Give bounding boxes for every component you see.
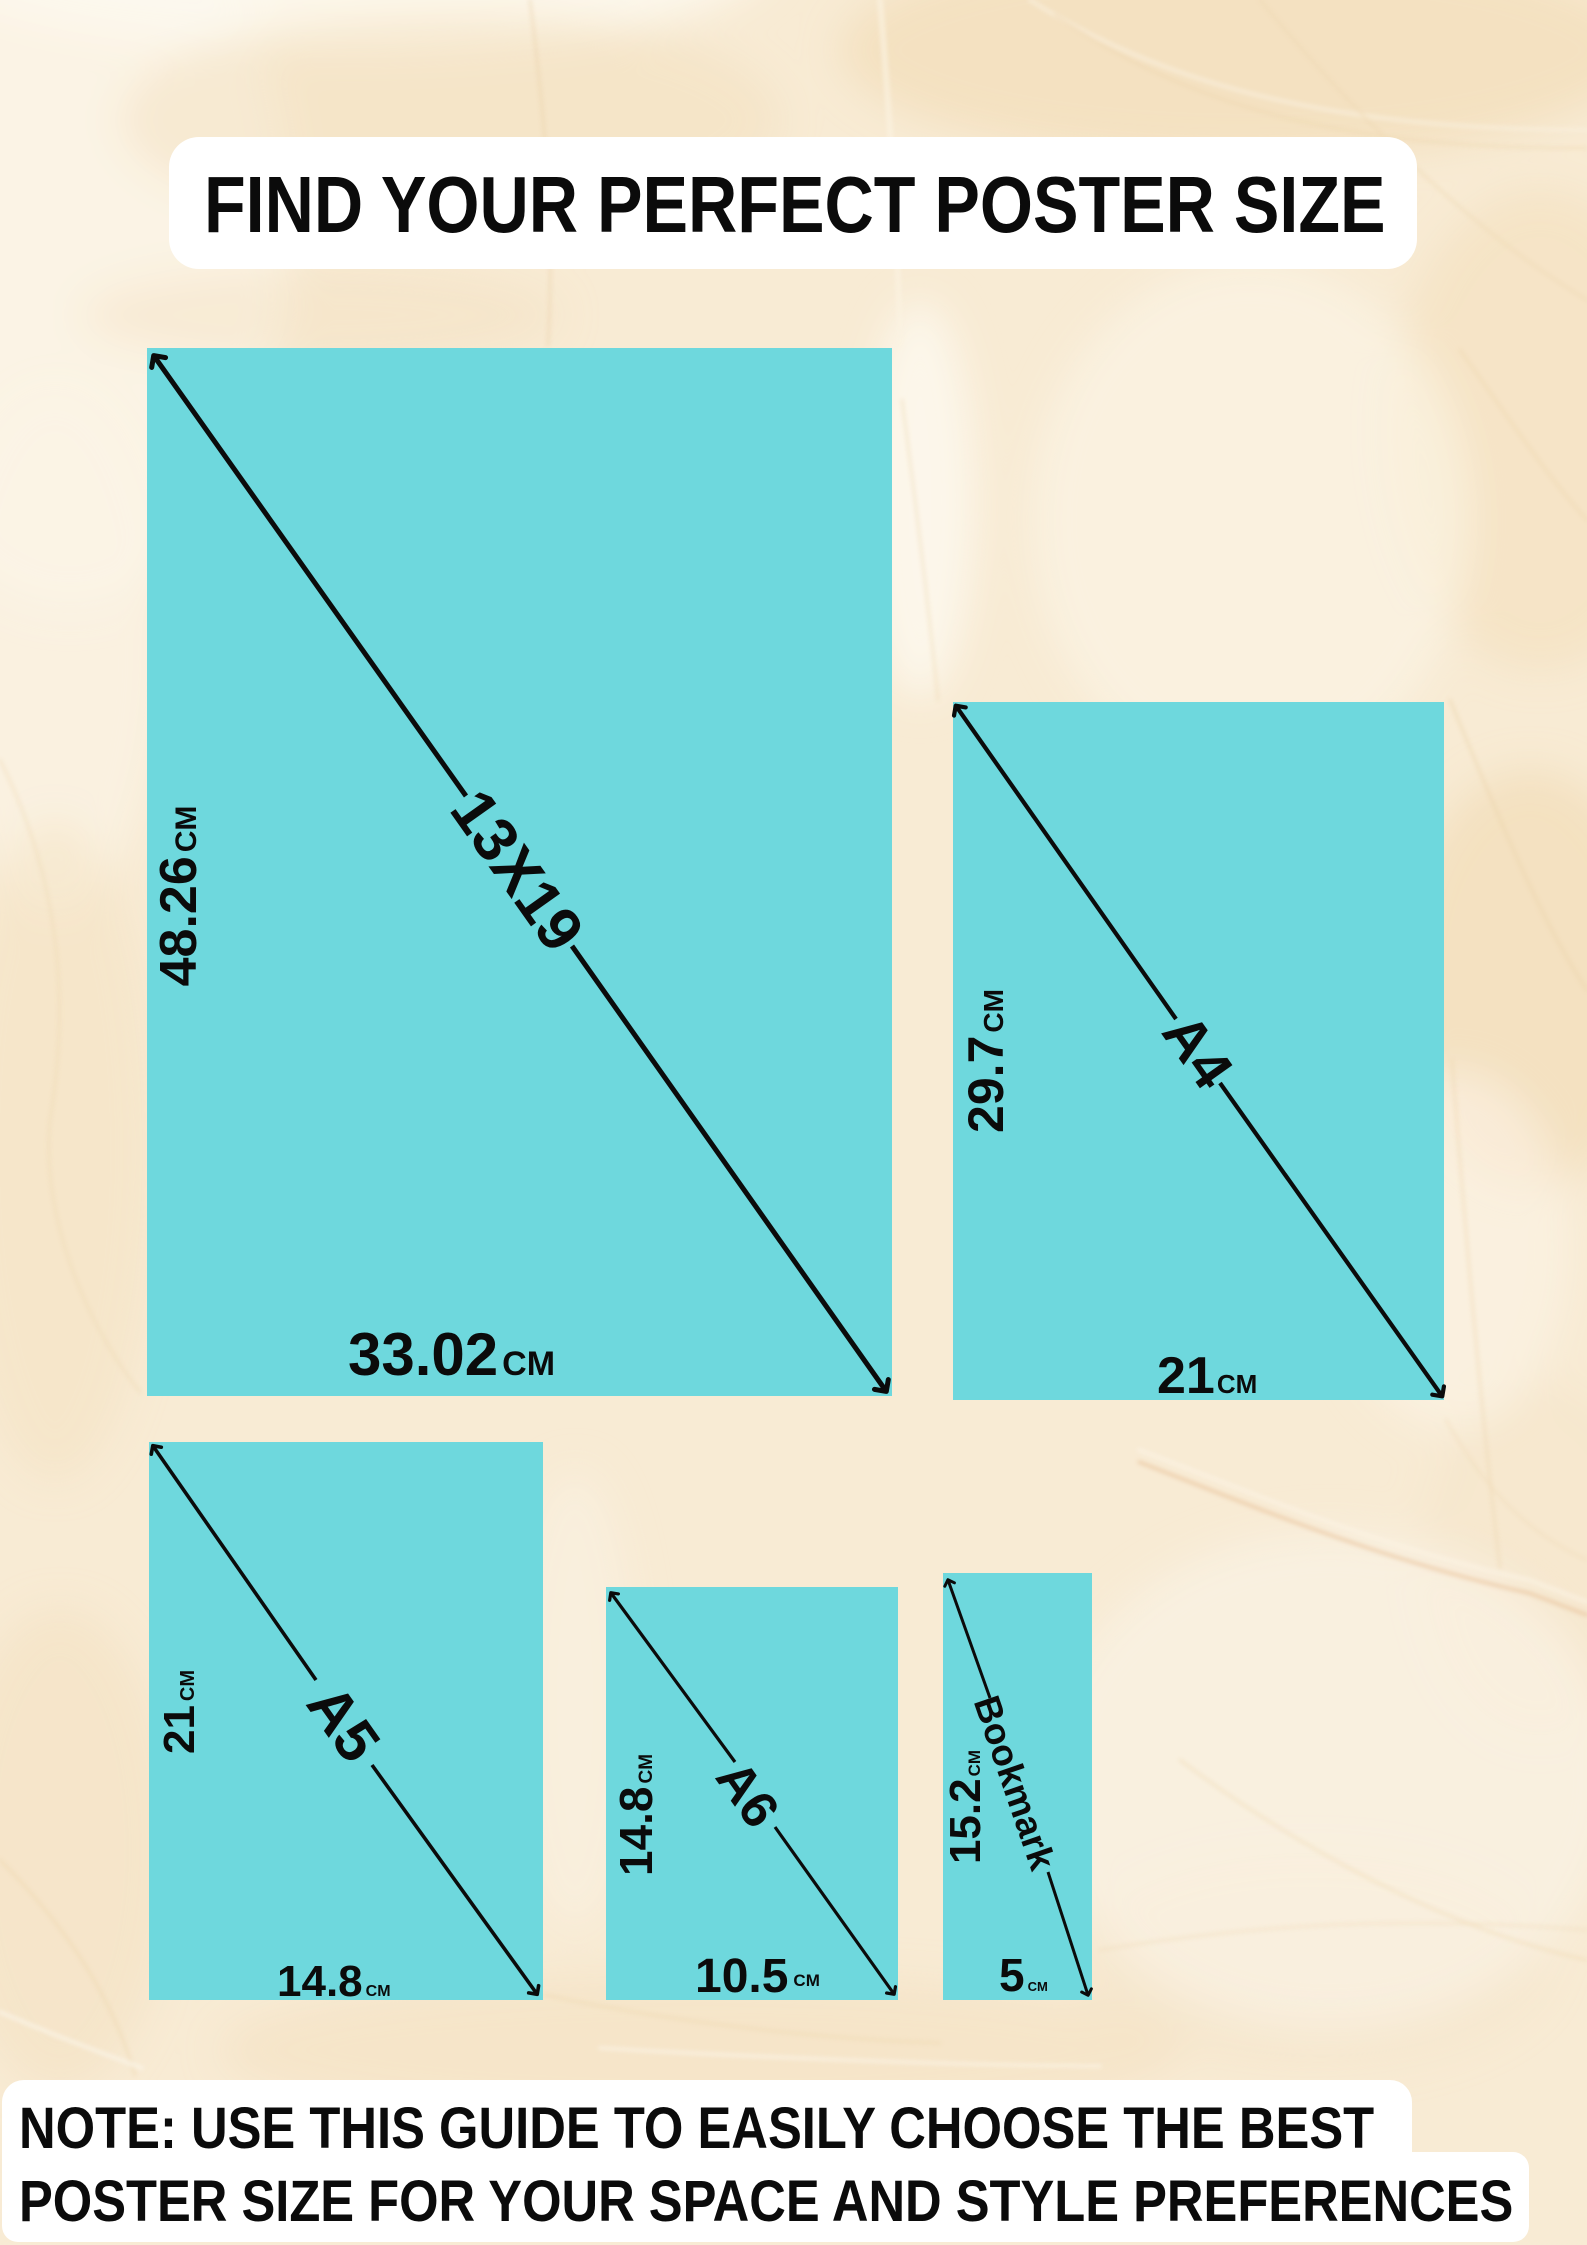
svg-text:NOTE: USE THIS GUIDE TO EASILY: NOTE: USE THIS GUIDE TO EASILY CHOOSE TH… (19, 2096, 1374, 2161)
svg-text:FIND YOUR PERFECT POSTER SIZE: FIND YOUR PERFECT POSTER SIZE (204, 160, 1386, 249)
svg-text:POSTER SIZE FOR YOUR SPACE AND: POSTER SIZE FOR YOUR SPACE AND STYLE PRE… (19, 2169, 1513, 2234)
